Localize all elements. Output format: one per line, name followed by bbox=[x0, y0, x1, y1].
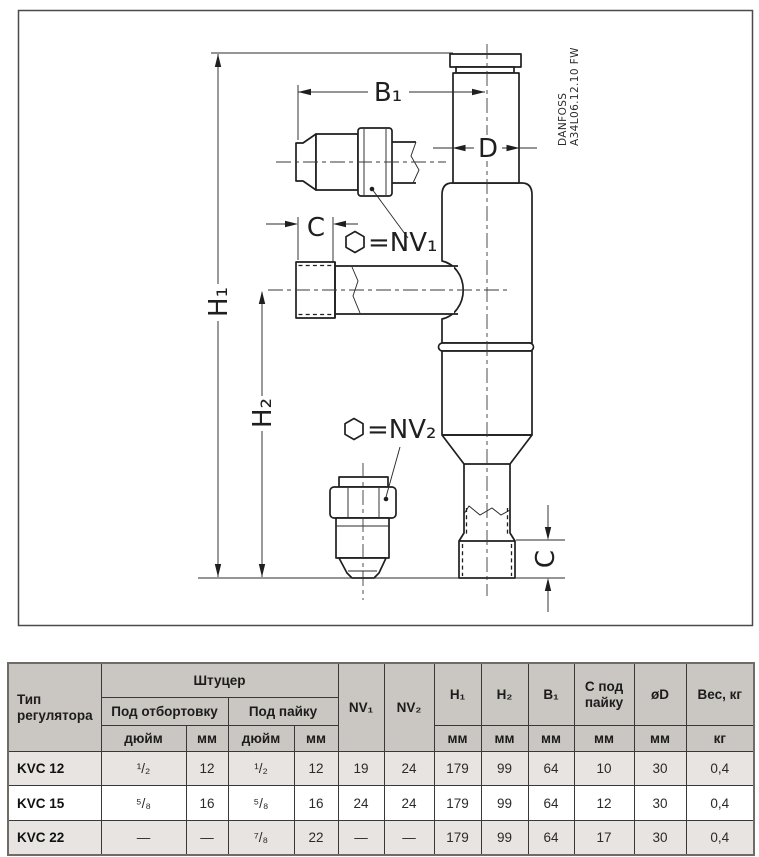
cell: — bbox=[101, 821, 186, 856]
row-type: KVC 12 bbox=[8, 752, 101, 786]
cell: 0,4 bbox=[686, 786, 754, 821]
header-nv1: NV₁ bbox=[338, 663, 384, 752]
cell: 24 bbox=[384, 786, 434, 821]
cell: 64 bbox=[528, 752, 574, 786]
cell: 99 bbox=[481, 821, 528, 856]
cell: 12 bbox=[186, 752, 228, 786]
cell: 16 bbox=[294, 786, 338, 821]
cell: 24 bbox=[338, 786, 384, 821]
cell: 16 bbox=[186, 786, 228, 821]
dimension-label-h2: H₂ bbox=[248, 398, 278, 428]
unit-inch: дюйм bbox=[101, 726, 186, 752]
dimension-label-c-top: C bbox=[307, 213, 325, 243]
drawing-panel: B₁ D C H₁ H₂ C =NV₁ =NV₂ DANFOSS A34L06.… bbox=[0, 0, 759, 645]
cell: 19 bbox=[338, 752, 384, 786]
header-h2: H₂ bbox=[481, 663, 528, 726]
cell: ¹/₂ bbox=[228, 752, 294, 786]
spec-table: Тип регулятора Штуцер NV₁ NV₂ H₁ H₂ B₁ С… bbox=[7, 662, 755, 856]
unit-inch: дюйм bbox=[228, 726, 294, 752]
unit-mm: мм bbox=[294, 726, 338, 752]
table-row: KVC 22 — — ⁷/₈ 22 — — 179 99 64 17 30 0,… bbox=[8, 821, 754, 856]
header-c-solder: С под пайку bbox=[574, 663, 634, 726]
cell: ⁵/₈ bbox=[101, 786, 186, 821]
cell: — bbox=[186, 821, 228, 856]
drawing-code-vertical: A34L06.12.10 FW bbox=[569, 47, 581, 146]
unit-mm: мм bbox=[528, 726, 574, 752]
cell: 179 bbox=[434, 752, 481, 786]
callout-label-nv1: =NV₁ bbox=[368, 228, 437, 258]
cell: ⁷/₈ bbox=[228, 821, 294, 856]
cell: 17 bbox=[574, 821, 634, 856]
header-flare: Под отбортовку bbox=[101, 698, 228, 726]
unit-mm: мм bbox=[481, 726, 528, 752]
unit-kg: кг bbox=[686, 726, 754, 752]
cell: 0,4 bbox=[686, 821, 754, 856]
cell: 0,4 bbox=[686, 752, 754, 786]
cell: 22 bbox=[294, 821, 338, 856]
cell: 30 bbox=[634, 821, 686, 856]
cell: 30 bbox=[634, 786, 686, 821]
header-solder: Под пайку bbox=[228, 698, 338, 726]
header-type: Тип регулятора bbox=[8, 663, 101, 752]
cell: 179 bbox=[434, 821, 481, 856]
dimension-label-b1: B₁ bbox=[374, 78, 402, 108]
unit-mm: мм bbox=[634, 726, 686, 752]
cell: 99 bbox=[481, 752, 528, 786]
cell: 179 bbox=[434, 786, 481, 821]
leader-dot-nv2 bbox=[384, 497, 389, 502]
cell: 12 bbox=[574, 786, 634, 821]
table-row: KVC 12 ¹/₂ 12 ¹/₂ 12 19 24 179 99 64 10 … bbox=[8, 752, 754, 786]
header-h1: H₁ bbox=[434, 663, 481, 726]
cell: 99 bbox=[481, 786, 528, 821]
row-type: KVC 15 bbox=[8, 786, 101, 821]
leader-dot-nv1 bbox=[370, 187, 375, 192]
header-b1: B₁ bbox=[528, 663, 574, 726]
cell: — bbox=[338, 821, 384, 856]
header-dia: øD bbox=[634, 663, 686, 726]
dimension-label-c-bottom: C bbox=[531, 550, 561, 568]
cell: 24 bbox=[384, 752, 434, 786]
cell: 64 bbox=[528, 821, 574, 856]
header-shtucer: Штуцер bbox=[101, 663, 338, 698]
dimension-label-h1: H₁ bbox=[204, 287, 234, 317]
header-nv2: NV₂ bbox=[384, 663, 434, 752]
unit-mm: мм bbox=[574, 726, 634, 752]
unit-mm: мм bbox=[434, 726, 481, 752]
row-type: KVC 22 bbox=[8, 821, 101, 856]
cell: — bbox=[384, 821, 434, 856]
cell: ⁵/₈ bbox=[228, 786, 294, 821]
dimension-label-d: D bbox=[478, 134, 498, 164]
header-weight: Вес, кг bbox=[686, 663, 754, 726]
valve-technical-drawing: B₁ D C H₁ H₂ C =NV₁ =NV₂ DANFOSS A34L06.… bbox=[0, 0, 759, 645]
cell: 12 bbox=[294, 752, 338, 786]
unit-mm: мм bbox=[186, 726, 228, 752]
spec-table-wrap: Тип регулятора Штуцер NV₁ NV₂ H₁ H₂ B₁ С… bbox=[7, 662, 755, 856]
cell: ¹/₂ bbox=[101, 752, 186, 786]
cell: 30 bbox=[634, 752, 686, 786]
brand-text-vertical: DANFOSS bbox=[557, 93, 569, 146]
cell: 64 bbox=[528, 786, 574, 821]
callout-label-nv2: =NV₂ bbox=[367, 415, 436, 445]
cell: 10 bbox=[574, 752, 634, 786]
table-row: KVC 15 ⁵/₈ 16 ⁵/₈ 16 24 24 179 99 64 12 … bbox=[8, 786, 754, 821]
